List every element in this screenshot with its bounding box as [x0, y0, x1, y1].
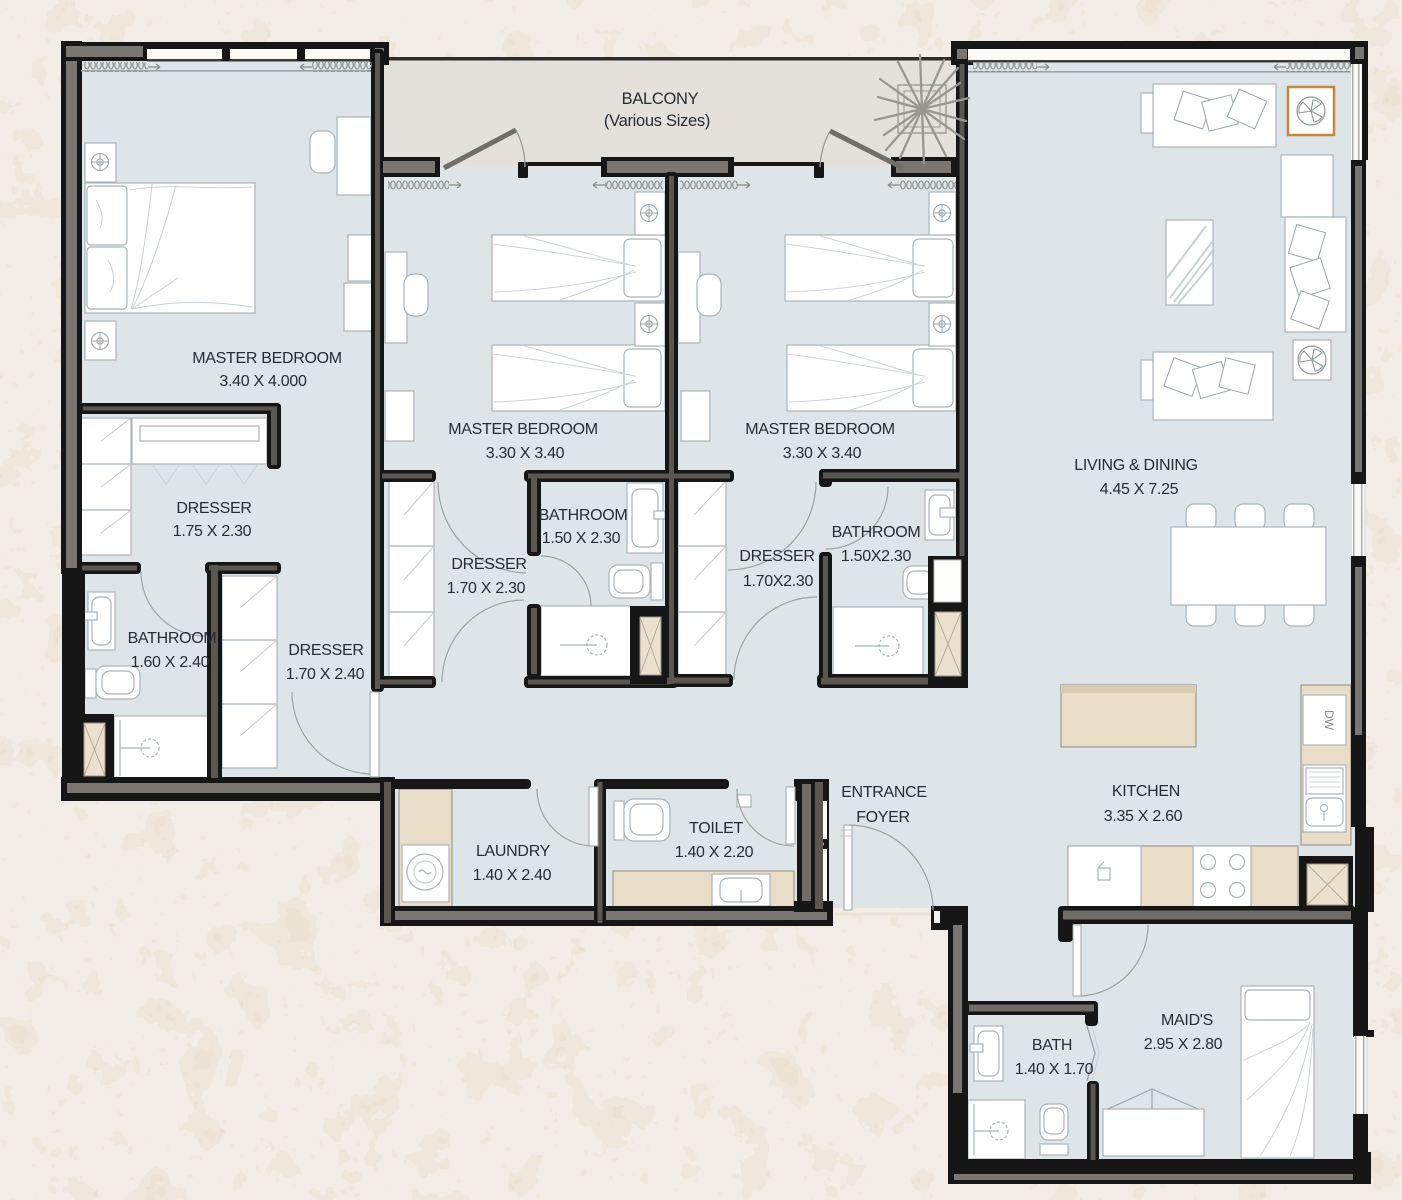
svg-text:1.70 X 2.40: 1.70 X 2.40 [286, 666, 365, 683]
svg-text:1.70X2.30: 1.70X2.30 [743, 573, 814, 590]
svg-text:BALCONY: BALCONY [622, 90, 699, 108]
svg-text:TOILET: TOILET [689, 820, 743, 837]
svg-text:3.35 X 2.60: 3.35 X 2.60 [1104, 808, 1183, 825]
svg-text:DRESSER: DRESSER [176, 500, 251, 517]
svg-text:1.40 X 1.70: 1.40 X 1.70 [1015, 1061, 1094, 1078]
svg-text:FOYER: FOYER [856, 809, 910, 826]
svg-text:BATHROOM: BATHROOM [539, 507, 628, 524]
svg-text:3.30 X 3.40: 3.30 X 3.40 [486, 445, 565, 462]
svg-text:2.95 X 2.80: 2.95 X 2.80 [1144, 1036, 1223, 1053]
svg-text:MASTER BEDROOM: MASTER BEDROOM [192, 350, 342, 367]
svg-text:ENTRANCE: ENTRANCE [841, 784, 927, 801]
svg-text:MASTER BEDROOM: MASTER BEDROOM [745, 421, 895, 438]
svg-text:1.40 X 2.40: 1.40 X 2.40 [473, 867, 552, 884]
svg-text:LAUNDRY: LAUNDRY [476, 843, 551, 860]
svg-text:MAID'S: MAID'S [1161, 1012, 1213, 1029]
svg-text:MASTER BEDROOM: MASTER BEDROOM [448, 421, 598, 438]
svg-text:DRESSER: DRESSER [288, 642, 363, 659]
svg-text:DRESSER: DRESSER [451, 556, 526, 573]
svg-text:1.50X2.30: 1.50X2.30 [841, 548, 912, 565]
svg-text:BATHROOM: BATHROOM [128, 630, 217, 647]
svg-text:1.40 X 2.20: 1.40 X 2.20 [675, 844, 754, 861]
svg-text:DW: DW [1322, 710, 1336, 731]
svg-text:(Various Sizes): (Various Sizes) [604, 112, 710, 130]
svg-text:4.45 X 7.25: 4.45 X 7.25 [1100, 481, 1179, 498]
svg-text:KITCHEN: KITCHEN [1112, 783, 1180, 800]
svg-text:1.60 X 2.40: 1.60 X 2.40 [131, 654, 210, 671]
svg-text:3.30 X 3.40: 3.30 X 3.40 [783, 445, 862, 462]
svg-text:1.75 X 2.30: 1.75 X 2.30 [173, 523, 252, 540]
svg-text:1.50 X 2.30: 1.50 X 2.30 [542, 530, 621, 547]
svg-text:1.70 X 2.30: 1.70 X 2.30 [447, 580, 526, 597]
svg-text:BATH: BATH [1032, 1037, 1072, 1054]
svg-text:3.40 X 4.000: 3.40 X 4.000 [219, 373, 307, 390]
svg-text:DRESSER: DRESSER [739, 548, 814, 565]
svg-text:BATHROOM: BATHROOM [832, 524, 921, 541]
svg-text:LIVING & DINING: LIVING & DINING [1074, 457, 1198, 474]
